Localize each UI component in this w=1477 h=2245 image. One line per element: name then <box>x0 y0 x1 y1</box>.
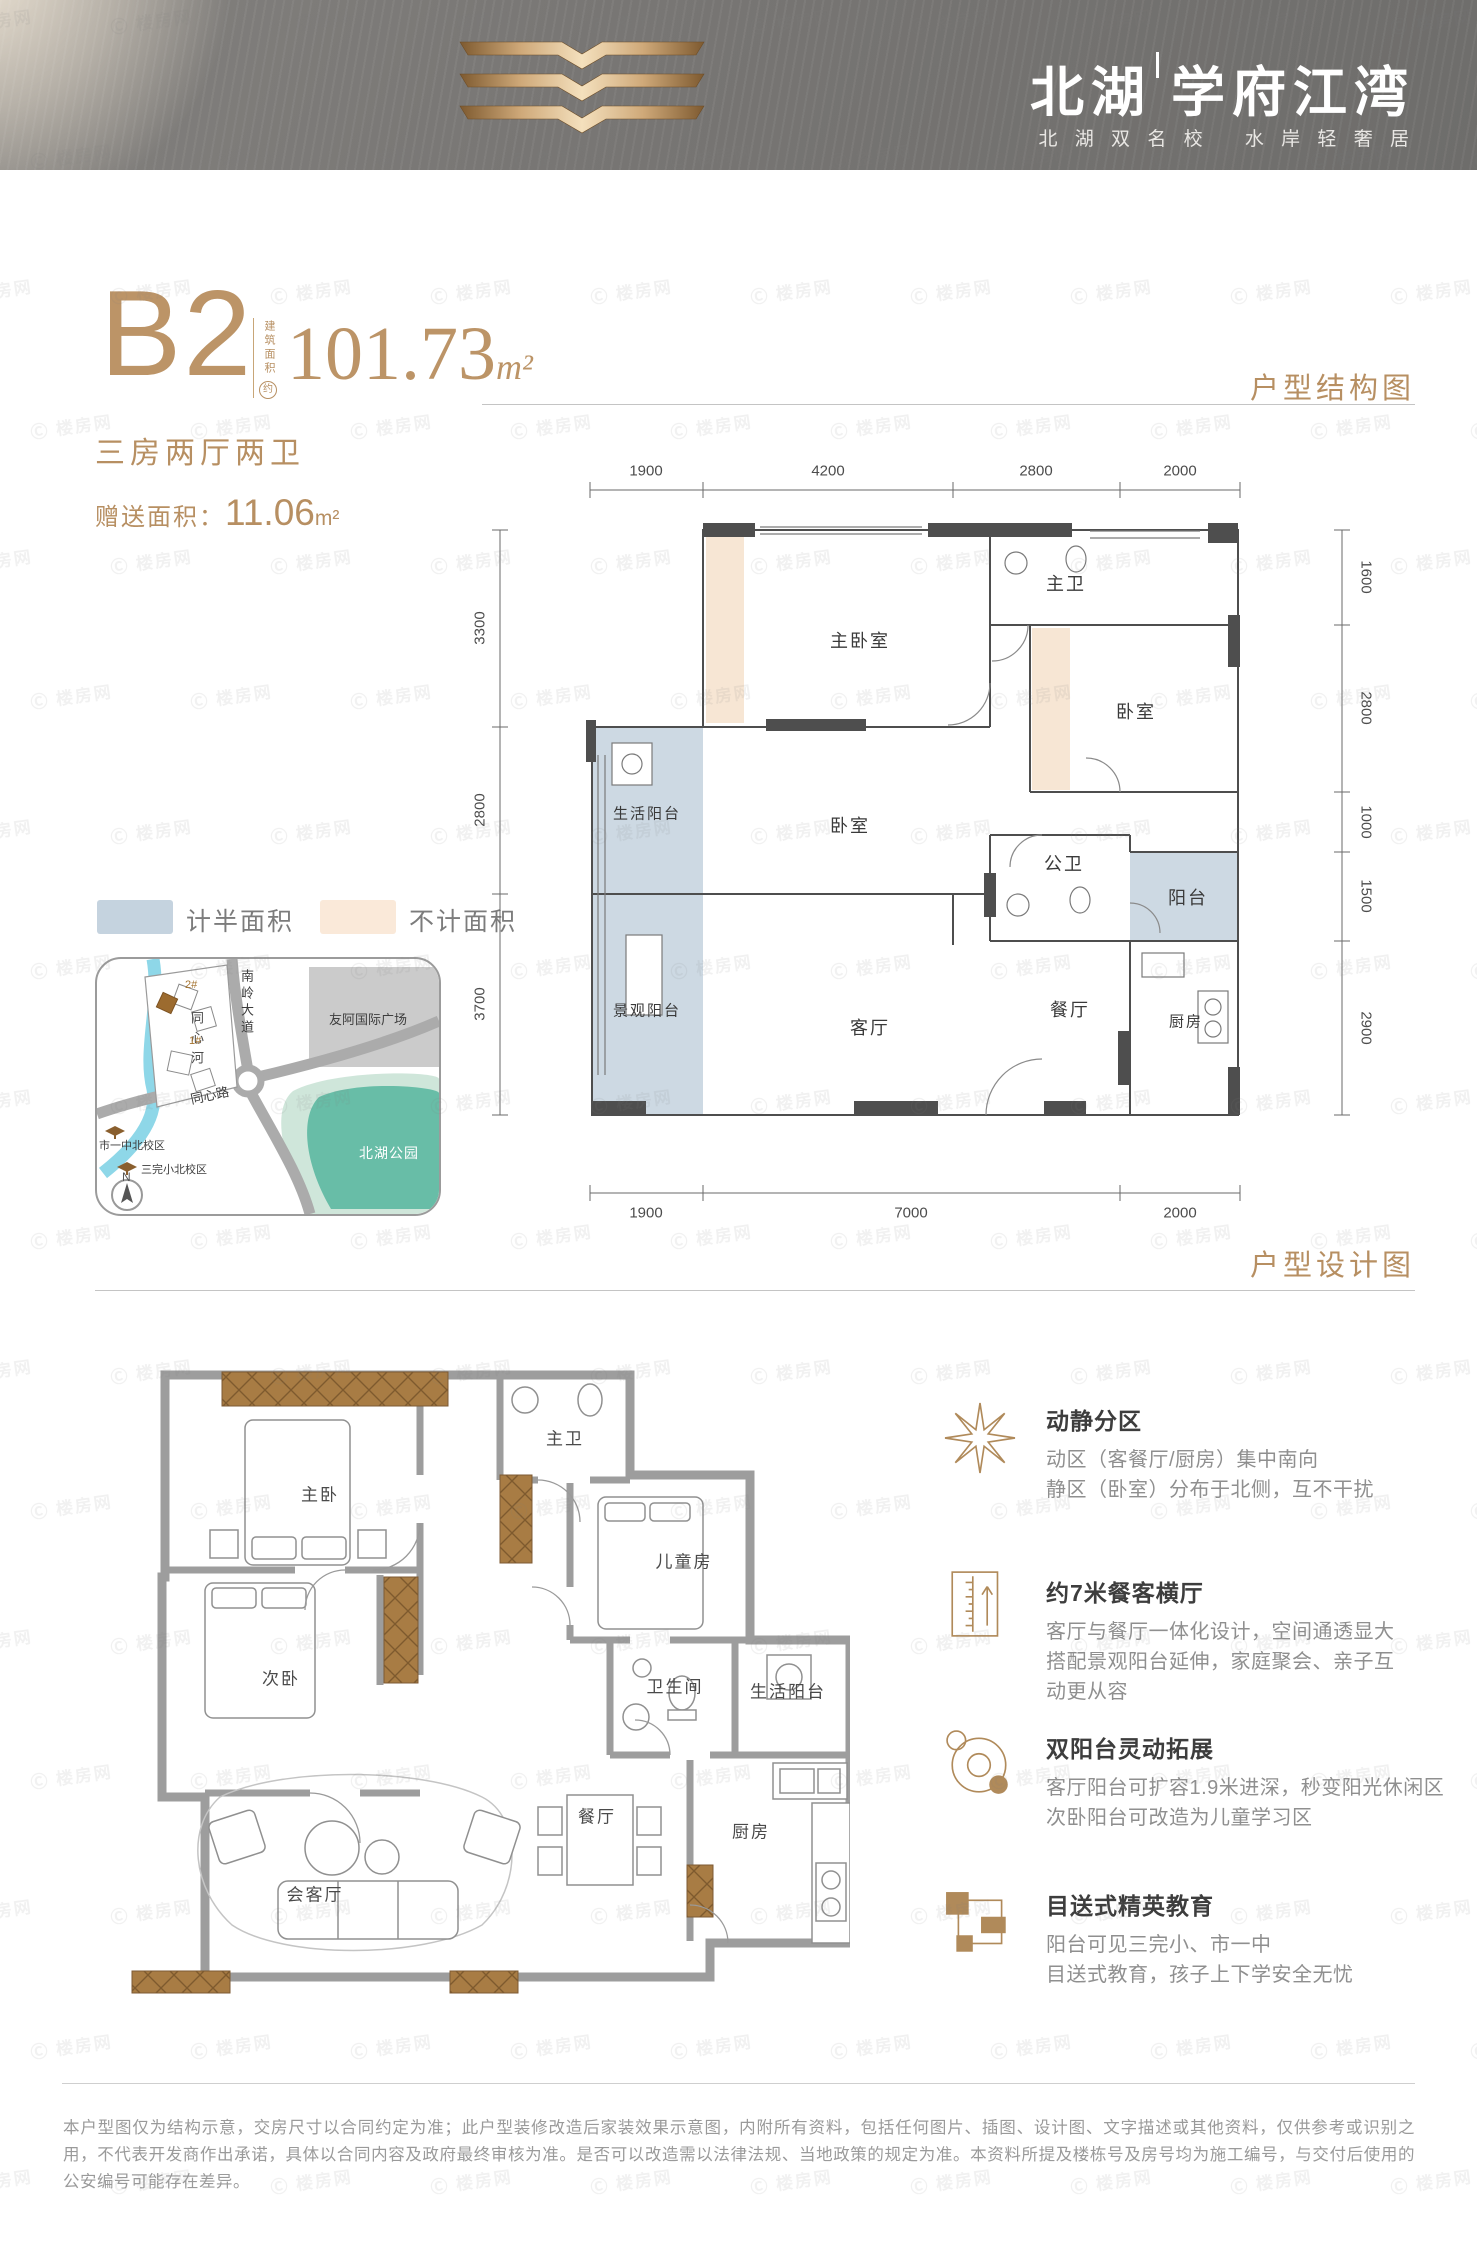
feature-4-title: 目送式精英教育 <box>1046 1887 1476 1921</box>
droom-service-balcony: 生活阳台 <box>750 1678 826 1703</box>
feature-2-line1: 客厅与餐厅一体化设计，空间通透显大 <box>1046 1617 1476 1647</box>
section-structure-rule <box>482 404 1415 405</box>
dim-bottom-1: 1900 <box>629 1205 662 1222</box>
unit-layout: 三房两厅两卫 <box>95 428 305 472</box>
dim-right-1: 1600 <box>1358 560 1375 593</box>
room-living: 客厅 <box>850 1014 890 1040</box>
room-view-balcony: 景观阳台 <box>613 1000 681 1021</box>
room-master-bedroom: 主卧室 <box>830 627 890 653</box>
feature-3: 双阳台灵动拓展 客厅阳台可扩容1.9米进深，秒变阳光休闲区 次卧阳台可改造为儿童… <box>1046 1730 1476 1833</box>
droom-second: 次卧 <box>262 1665 300 1690</box>
legend-swatch-half-area <box>97 900 173 934</box>
dim-left-3: 3700 <box>472 987 489 1020</box>
room-service-balcony: 生活阳台 <box>613 803 681 824</box>
project-slogan: 北 湖 双 名 校 水 岸 轻 奢 居 <box>1038 124 1415 151</box>
disclaimer-rule <box>62 2083 1415 2084</box>
section-structure-label: 户型结构图 <box>1250 365 1415 407</box>
map-label-road-vertical: 南岭大道 <box>237 969 256 1037</box>
area-note-circle: 约 <box>259 381 277 399</box>
dim-bottom-2: 7000 <box>894 1205 927 1222</box>
droom-living: 会客厅 <box>287 1881 344 1906</box>
design-floor-plan: 主卧 主卫 次卧 儿童房 卫生间 生活阳台 餐厅 厨房 会客厅 <box>70 1325 850 2025</box>
map-label-compass-n: N <box>122 1170 131 1184</box>
design-plan-graphics <box>70 1325 850 2025</box>
droom-bath: 卫生间 <box>647 1673 704 1698</box>
built-area: 101.73m² <box>287 316 533 392</box>
ruler-icon <box>944 1568 1016 1640</box>
dim-right-3: 1000 <box>1358 805 1375 838</box>
bonus-area-value: 11.06 <box>225 492 315 533</box>
feature-3-title: 双阳台灵动拓展 <box>1046 1730 1476 1764</box>
dim-bottom-3: 2000 <box>1163 1205 1196 1222</box>
dim-right-2: 2800 <box>1358 691 1375 724</box>
project-title-part1: 北湖 <box>1030 48 1152 127</box>
map-label-park: 北湖公园 <box>359 1143 419 1163</box>
unit-name: B2 <box>100 272 253 394</box>
room-master-bath: 主卫 <box>1046 570 1086 596</box>
area-note-vertical: 建筑面积 <box>261 320 277 378</box>
title-divider-line <box>253 318 254 398</box>
structure-floor-plan: 主卧室 主卫 卧室 卧室 公卫 阳台 生活阳台 景观阳台 客厅 餐厅 厨房 19… <box>430 435 1410 1225</box>
built-area-unit: m² <box>496 347 533 387</box>
droom-master: 主卧 <box>301 1481 339 1506</box>
dim-top-3: 2800 <box>1019 463 1052 480</box>
feature-1-title: 动静分区 <box>1046 1402 1476 1436</box>
page: 北湖 学府江湾 北 湖 双 名 校 水 岸 轻 奢 居 B2 建筑面积 约 10… <box>0 0 1477 2245</box>
map-label-building2: 2# <box>185 979 197 991</box>
dim-top-1: 1900 <box>629 463 662 480</box>
open-book-logo-icon <box>458 40 706 136</box>
room-bedroom-right: 卧室 <box>1116 698 1156 724</box>
dim-right-4: 1500 <box>1358 879 1375 912</box>
droom-kitchen: 厨房 <box>732 1818 770 1843</box>
dim-top-2: 4200 <box>811 463 844 480</box>
room-public-bath: 公卫 <box>1044 850 1084 876</box>
bonus-area-unit: m² <box>315 507 340 530</box>
bonus-area-label: 赠送面积： <box>95 504 225 531</box>
feature-4-line2: 目送式教育，孩子上下学安全无忧 <box>1046 1960 1476 1990</box>
droom-kids: 儿童房 <box>656 1548 713 1573</box>
legend-label-half-area: 计半面积 <box>186 902 294 938</box>
roundabout <box>235 1068 261 1094</box>
disclaimer-text: 本户型图仅为结构示意，交房尺寸以合同约定为准；此户型装修改造后家装效果示意图，内… <box>63 2115 1415 2197</box>
room-kitchen: 厨房 <box>1169 1011 1203 1032</box>
blocks-icon <box>944 1890 1016 1962</box>
feature-1-line1: 动区（客餐厅/厨房）集中南向 <box>1046 1445 1476 1475</box>
feature-2: 约7米餐客横厅 客厅与餐厅一体化设计，空间通透显大 搭配景观阳台延伸，家庭聚会、… <box>1046 1574 1476 1707</box>
dim-left-1: 3300 <box>472 611 489 644</box>
feature-1: 动静分区 动区（客餐厅/厨房）集中南向 静区（卧室）分布于北侧，互不干扰 <box>1046 1402 1476 1505</box>
feature-2-line2: 搭配景观阳台延伸，家庭聚会、亲子互 <box>1046 1647 1476 1677</box>
map-label-school2: 三完小北校区 <box>141 1161 207 1177</box>
feature-4-line1: 阳台可见三完小、市一中 <box>1046 1930 1476 1960</box>
project-title: 北湖 学府江湾 <box>1030 48 1415 127</box>
structure-plan-graphics <box>430 435 1410 1225</box>
feature-3-line2: 次卧阳台可改造为儿童学习区 <box>1046 1803 1476 1833</box>
orbit-icon <box>944 1727 1016 1799</box>
location-map: 同心河 南岭大道 同心路 友阿国际广场 北湖公园 市一中北校区 三完小北校区 2… <box>95 957 441 1216</box>
feature-1-line2: 静区（卧室）分布于北侧，互不干扰 <box>1046 1475 1476 1505</box>
map-label-building1: 1# <box>189 1035 201 1047</box>
compass <box>112 1180 142 1210</box>
dim-top-4: 2000 <box>1163 463 1196 480</box>
map-label-school1: 市一中北校区 <box>99 1137 165 1153</box>
built-area-value: 101.73 <box>287 312 496 396</box>
dim-right-5: 2900 <box>1358 1011 1375 1044</box>
legend-swatch-excluded-area <box>320 900 396 934</box>
feature-4: 目送式精英教育 阳台可见三完小、市一中 目送式教育，孩子上下学安全无忧 <box>1046 1887 1476 1990</box>
room-bedroom-center: 卧室 <box>830 812 870 838</box>
feature-2-title: 约7米餐客横厅 <box>1046 1574 1476 1608</box>
droom-master-bath: 主卫 <box>546 1425 584 1450</box>
star-burst-icon <box>944 1402 1016 1474</box>
section-design-rule <box>95 1290 1415 1291</box>
droom-dining: 餐厅 <box>576 1803 618 1828</box>
project-title-part2: 学府江湾 <box>1171 48 1415 127</box>
dim-left-2: 2800 <box>472 793 489 826</box>
room-dining: 餐厅 <box>1050 996 1090 1022</box>
section-design-label: 户型设计图 <box>1250 1242 1415 1284</box>
map-label-plaza: 友阿国际广场 <box>329 1009 407 1028</box>
fixtures <box>612 546 1228 1043</box>
feature-3-line1: 客厅阳台可扩容1.9米进深，秒变阳光休闲区 <box>1046 1773 1476 1803</box>
title-divider <box>1156 52 1159 78</box>
bonus-area: 赠送面积：11.06m² <box>95 492 339 534</box>
room-balcony: 阳台 <box>1168 884 1208 910</box>
header-banner: 北湖 学府江湾 北 湖 双 名 校 水 岸 轻 奢 居 <box>0 0 1477 170</box>
feature-2-line3: 动更从容 <box>1046 1677 1476 1707</box>
shaded-zones <box>592 535 1238 1115</box>
